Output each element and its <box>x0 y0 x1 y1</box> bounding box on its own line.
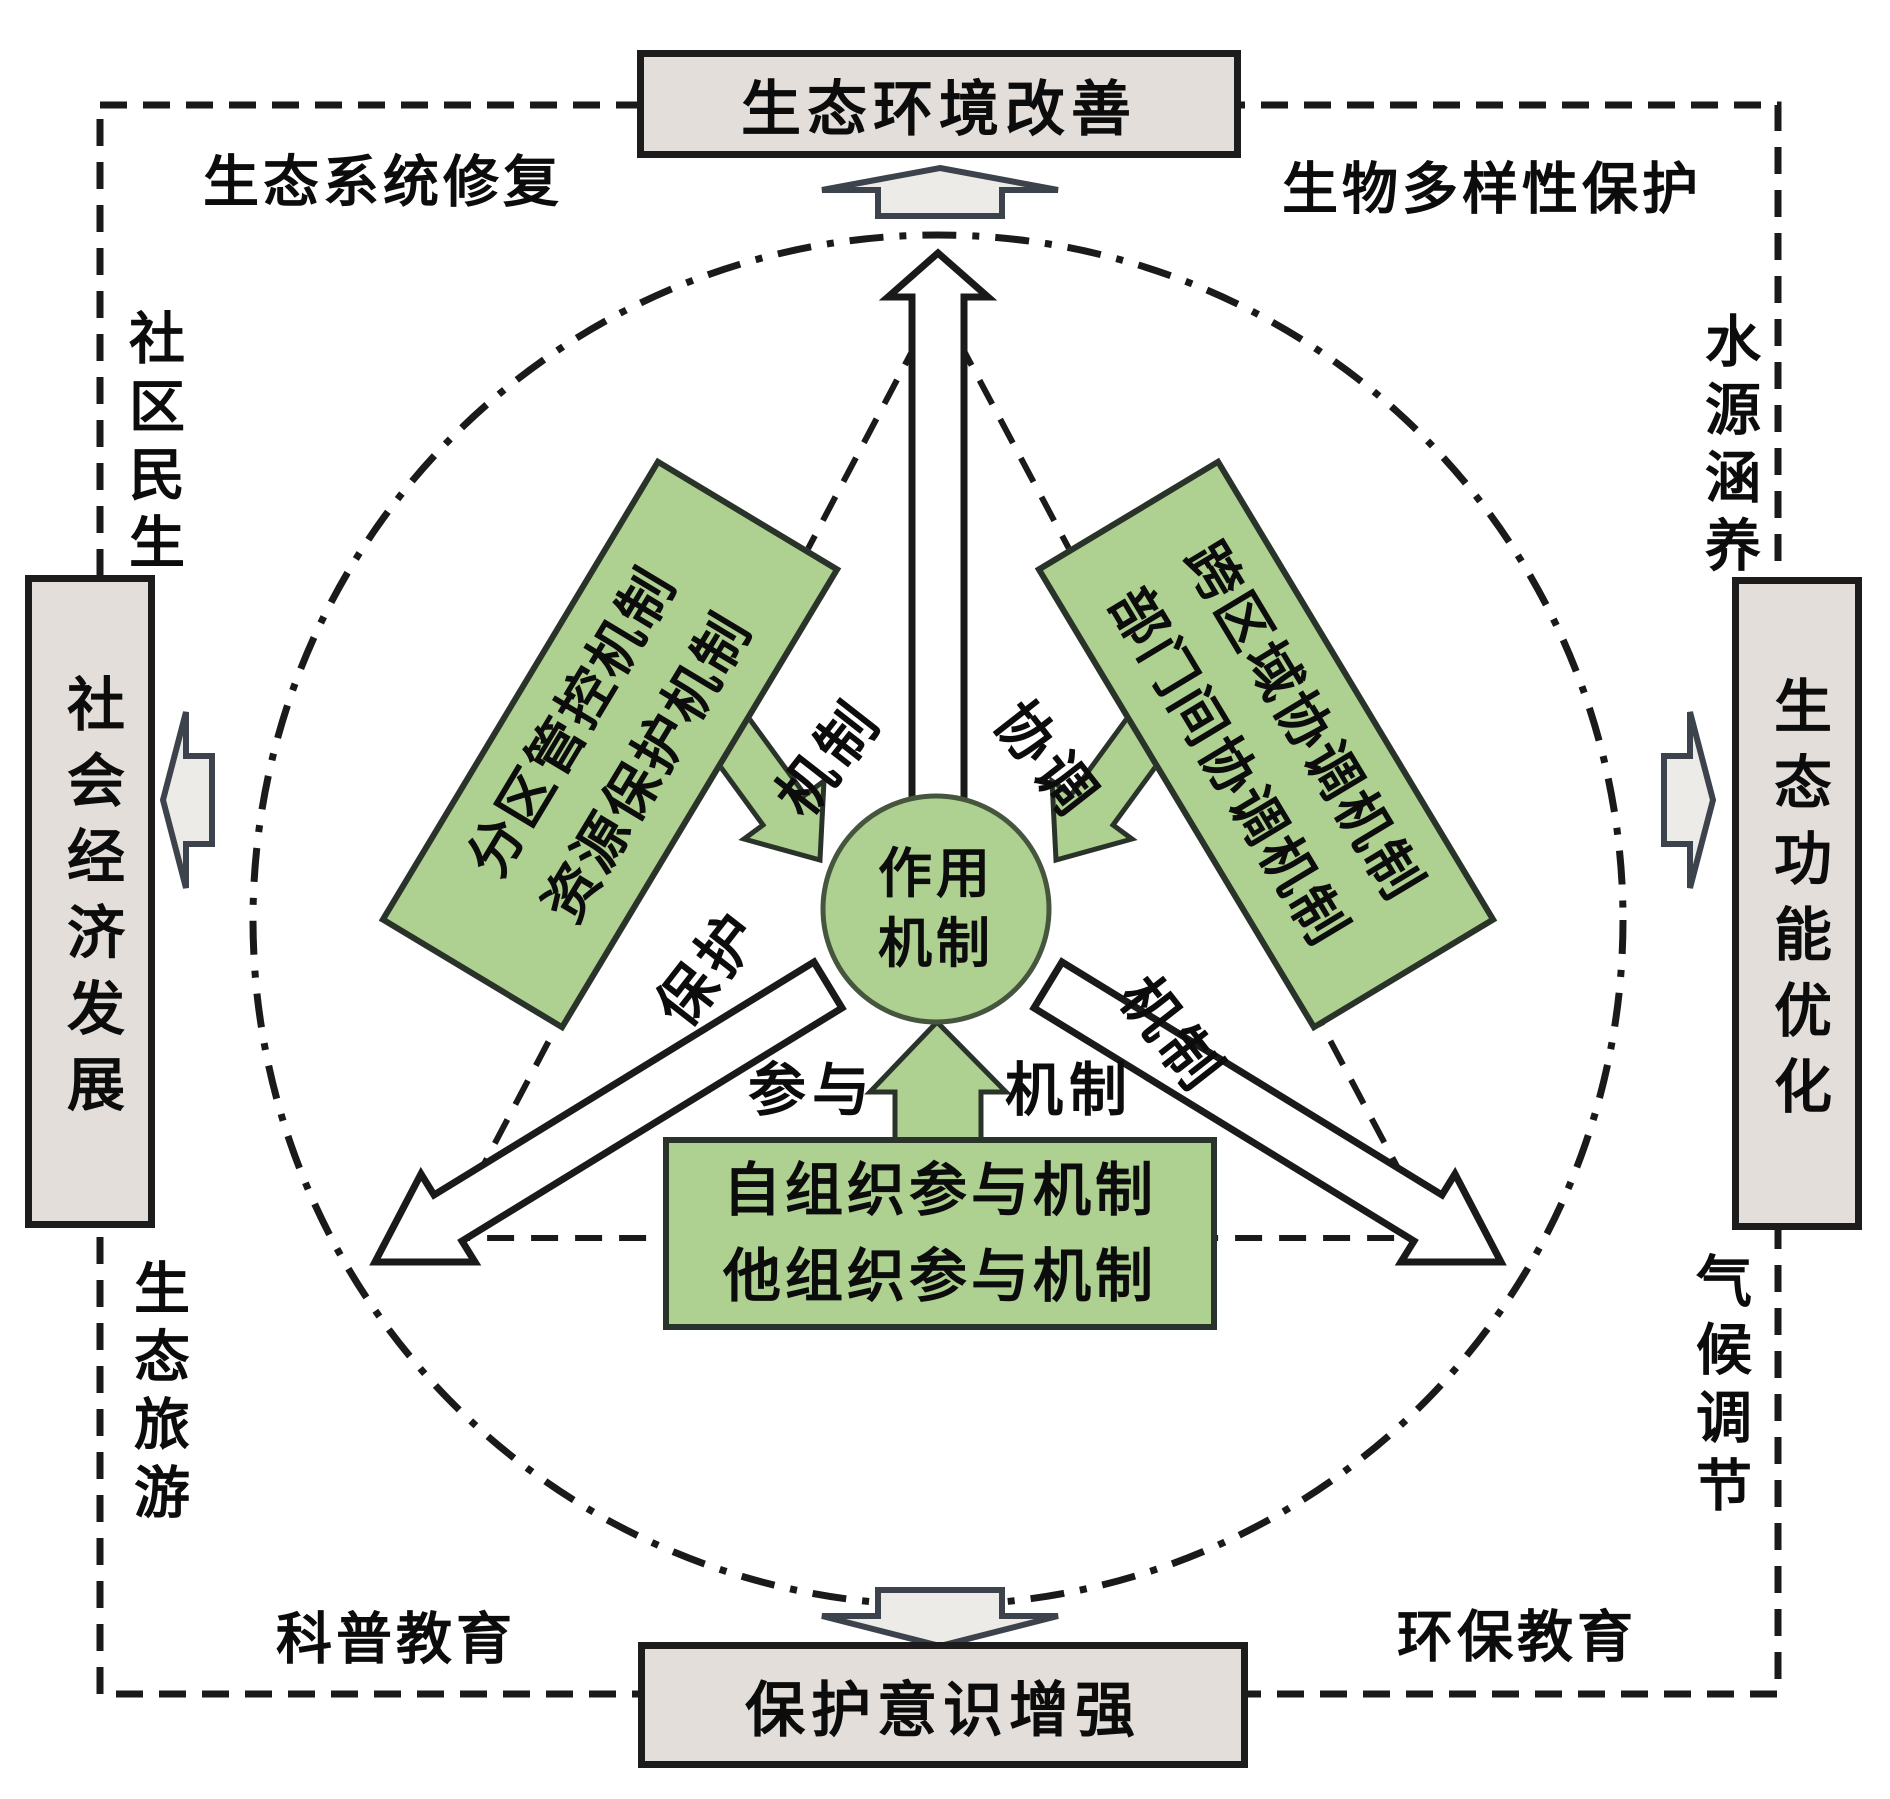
gray-arrow-top-icon <box>822 168 1058 216</box>
center-circle-label: 作用 机制 <box>821 839 1051 979</box>
arrow-label-participation-part1: 参与 <box>748 1043 876 1127</box>
outcome-box-left: 社会经济发展 <box>25 575 155 1228</box>
mechanism-box-bottom-line2: 他组织参与机制 <box>723 1234 1157 1320</box>
gray-arrow-bottom-icon <box>822 1590 1058 1646</box>
diagram-canvas: 生态环境改善 保护意识增强 社会经济发展 生态功能优化 分区管控机制 资源保护机… <box>0 0 1890 1799</box>
corner-label-bottom-right: 环保教育 <box>1397 1593 1637 1674</box>
corner-label-bottom-left: 科普教育 <box>276 1595 516 1676</box>
corner-label-top-left: 生态系统修复 <box>203 138 563 219</box>
side-label-left-lower: 生态旅游 <box>117 1259 198 1531</box>
outcome-box-top: 生态环境改善 <box>637 50 1241 158</box>
gray-arrow-right-icon <box>1664 712 1713 888</box>
corner-label-top-right: 生物多样性保护 <box>1282 145 1702 226</box>
side-label-right-upper: 水源涵养 <box>1688 312 1769 584</box>
mechanism-box-bottom: 自组织参与机制 他组织参与机制 <box>663 1137 1217 1330</box>
white-arrow-up-icon <box>888 253 988 802</box>
outcome-box-left-label: 社会经济发展 <box>48 674 132 1130</box>
side-label-right-lower: 气候调节 <box>1679 1252 1760 1524</box>
center-circle-line1: 作用 <box>821 839 1051 909</box>
mechanism-box-bottom-line1: 自组织参与机制 <box>723 1148 1157 1234</box>
outcome-box-right: 生态功能优化 <box>1732 577 1862 1230</box>
gray-arrow-left-icon <box>163 712 212 888</box>
outcome-box-bottom: 保护意识增强 <box>638 1642 1248 1768</box>
outcome-box-bottom-label: 保护意识增强 <box>745 1662 1141 1749</box>
outcome-box-right-label: 生态功能优化 <box>1755 676 1839 1132</box>
outcome-box-top-label: 生态环境改善 <box>741 61 1137 148</box>
green-arrow-participation-icon <box>870 1022 1006 1140</box>
center-circle-line2: 机制 <box>821 909 1051 979</box>
arrow-label-participation-part2: 机制 <box>1005 1043 1133 1127</box>
side-label-left-upper: 社区民生 <box>112 309 193 581</box>
